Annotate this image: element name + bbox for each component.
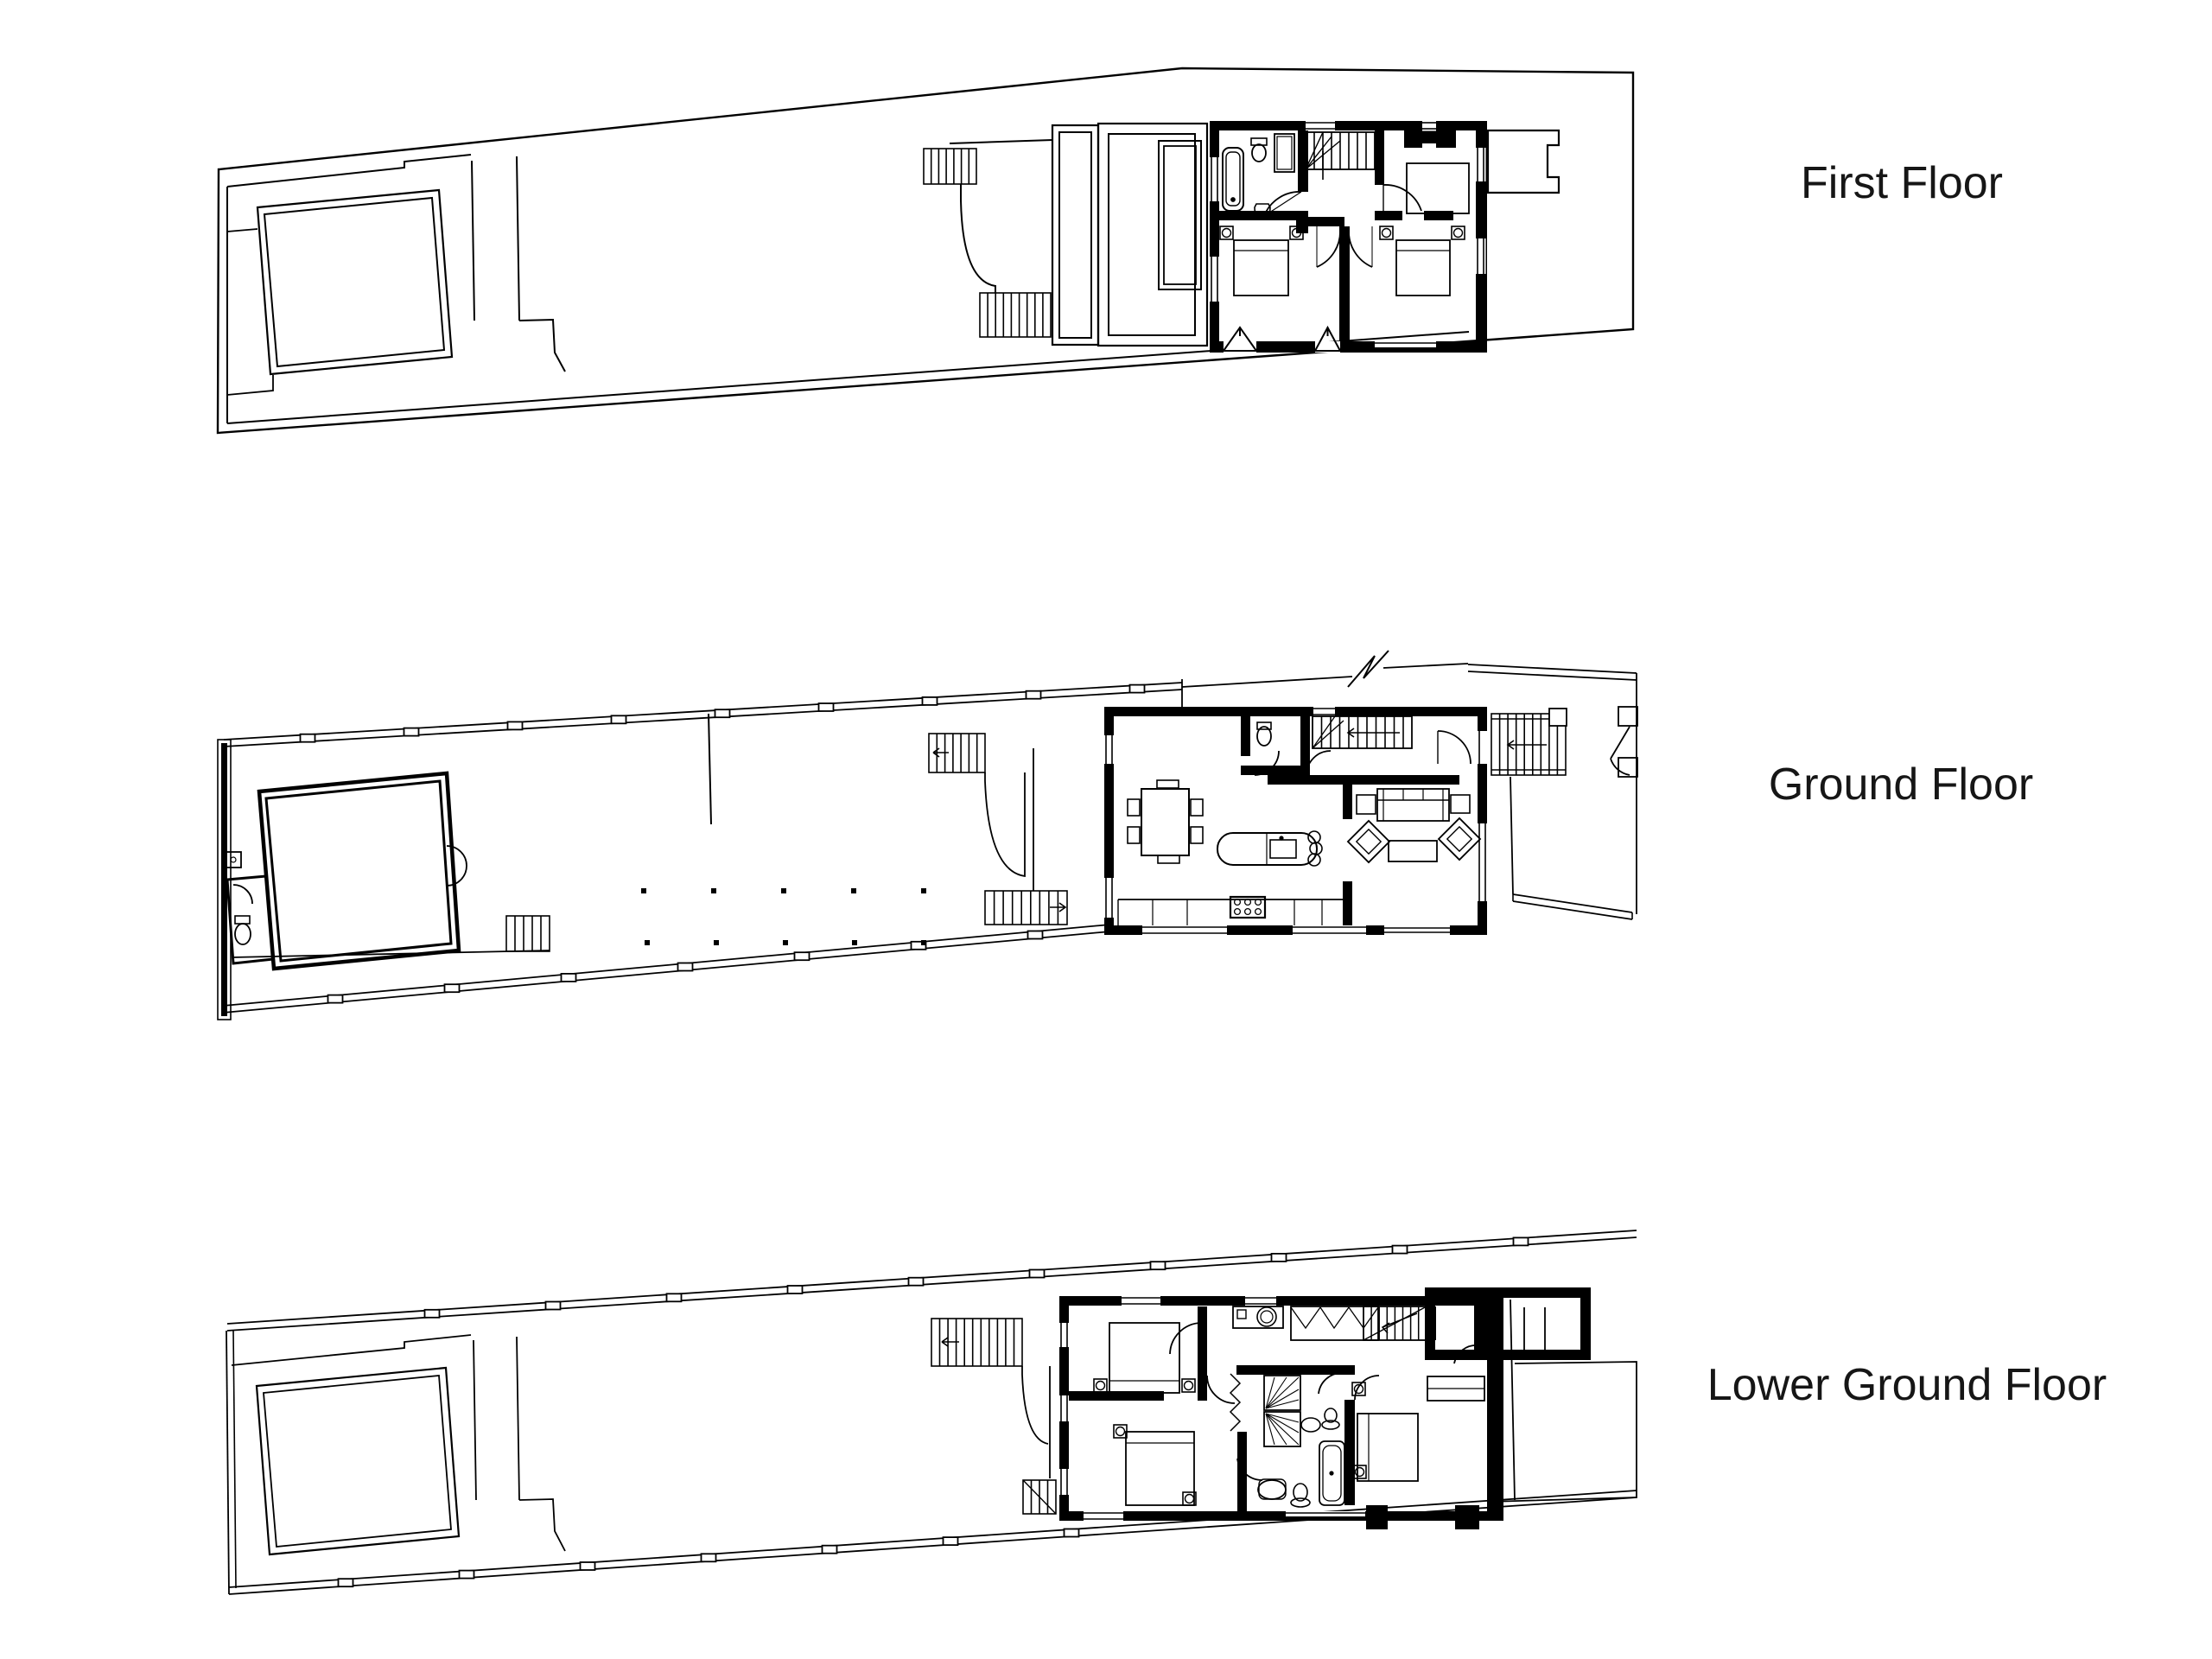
svg-text:First Floor: First Floor [1801,158,2003,208]
svg-text:Lower Ground Floor: Lower Ground Floor [1707,1360,2107,1410]
svg-text:Ground Floor: Ground Floor [1769,760,2033,810]
